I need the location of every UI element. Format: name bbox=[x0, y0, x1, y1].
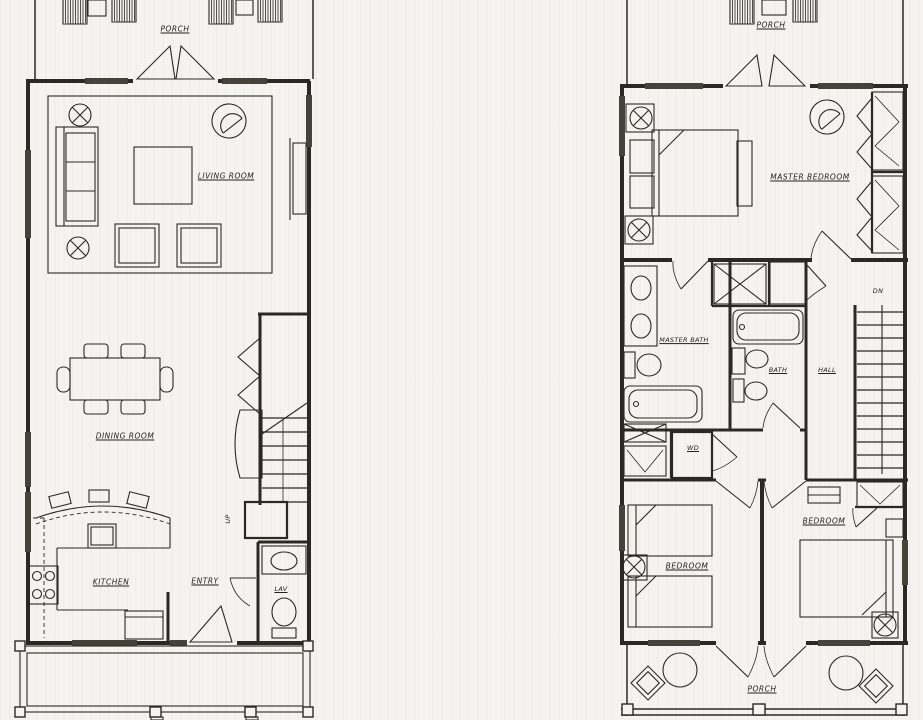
entry-label: ENTRY bbox=[191, 577, 218, 586]
toilet bbox=[624, 352, 661, 378]
buffet-cabinet bbox=[235, 410, 262, 478]
bath-label: BATH bbox=[769, 366, 788, 374]
door-swing bbox=[764, 481, 806, 508]
closet-bifold-doors bbox=[238, 338, 260, 414]
bathtub bbox=[624, 386, 702, 422]
washer-dryer-closet bbox=[672, 432, 712, 478]
second-floor-front-porch bbox=[627, 0, 903, 86]
dining-room-label: DINING ROOM bbox=[96, 432, 155, 441]
sofa bbox=[56, 127, 98, 226]
rocking-chair bbox=[258, 0, 282, 22]
queen-bed bbox=[800, 540, 893, 617]
ceiling-fan-icon bbox=[67, 237, 89, 259]
twin-bed bbox=[628, 505, 712, 556]
stove bbox=[28, 566, 58, 604]
second-floor bbox=[619, 0, 908, 716]
master-bath-label: MASTER BATH bbox=[659, 337, 709, 345]
ottoman-chair bbox=[177, 224, 221, 267]
rocking-chair bbox=[730, 0, 754, 24]
twin-bed bbox=[628, 576, 712, 627]
bar-counter bbox=[36, 506, 170, 518]
closet-hanging bbox=[624, 446, 666, 476]
bedroom-label: BEDROOM bbox=[803, 517, 846, 526]
porch-chair bbox=[859, 669, 893, 703]
door-swing bbox=[230, 578, 256, 606]
master-bed bbox=[652, 130, 738, 216]
ottoman-chair bbox=[115, 224, 159, 267]
dining-chair bbox=[84, 400, 108, 414]
dining-chair bbox=[121, 344, 145, 358]
ceiling-fan-icon bbox=[69, 104, 91, 126]
nightstand bbox=[886, 519, 903, 537]
bench bbox=[737, 141, 752, 206]
dining-chair bbox=[57, 367, 70, 392]
porch-label: PORCH bbox=[160, 25, 189, 34]
armchair bbox=[205, 97, 253, 145]
first-floor-front-porch bbox=[35, 0, 313, 79]
linen-closet bbox=[624, 424, 666, 442]
rocking-chair bbox=[209, 0, 233, 24]
dining-chair bbox=[121, 400, 145, 414]
porch-label: PORCH bbox=[756, 21, 785, 30]
closet-hanging bbox=[857, 92, 903, 253]
nightstand bbox=[630, 140, 654, 173]
bar-stool bbox=[49, 492, 71, 508]
shower bbox=[714, 264, 766, 304]
ceiling-fan-icon bbox=[630, 107, 652, 129]
master-bedroom-label: MASTER BEDROOM bbox=[770, 173, 849, 182]
french-doors bbox=[137, 46, 214, 79]
entry bbox=[190, 606, 232, 642]
nightstand bbox=[630, 176, 654, 208]
door-swing bbox=[853, 508, 877, 527]
hall-closet bbox=[770, 262, 806, 304]
dining-room bbox=[57, 344, 173, 414]
lav-label: LAV bbox=[274, 585, 287, 593]
front-door bbox=[190, 606, 232, 642]
door-swing bbox=[716, 481, 758, 508]
console-cabinet bbox=[293, 143, 306, 214]
armchair bbox=[803, 93, 851, 141]
door-swing bbox=[673, 261, 708, 289]
bathroom-sink bbox=[746, 350, 768, 368]
dn-label: DN bbox=[873, 287, 883, 295]
double-vanity bbox=[624, 266, 657, 346]
staircase-up bbox=[235, 314, 309, 538]
bedroom-label: BEDROOM bbox=[666, 562, 709, 571]
master-bedroom bbox=[625, 92, 903, 259]
door-swing bbox=[763, 403, 800, 428]
refrigerator bbox=[125, 611, 163, 639]
bar-stool bbox=[89, 490, 109, 502]
porch-table bbox=[663, 653, 697, 687]
rear-deck bbox=[15, 641, 313, 720]
first-floor bbox=[15, 0, 313, 720]
rocking-chair bbox=[793, 0, 817, 22]
kitchen bbox=[28, 490, 170, 643]
kitchen-label: KITCHEN bbox=[93, 578, 129, 587]
toilet bbox=[272, 598, 296, 638]
first-floor-walls bbox=[25, 78, 312, 646]
door-swing bbox=[806, 264, 826, 301]
porch-side-table bbox=[88, 0, 106, 16]
up-label: UP bbox=[224, 514, 232, 523]
dining-table bbox=[70, 358, 160, 400]
dresser bbox=[808, 487, 840, 503]
powder-room bbox=[230, 542, 309, 643]
master-bath bbox=[624, 261, 826, 422]
floorplan-drawing bbox=[0, 0, 923, 720]
hall-bath bbox=[732, 310, 803, 428]
toilet bbox=[733, 379, 767, 402]
rocking-chair bbox=[112, 0, 136, 22]
bathroom-sink bbox=[262, 546, 306, 574]
porch-label: PORCH bbox=[747, 685, 776, 694]
hall-label: HALL bbox=[818, 366, 836, 374]
bedroom-left bbox=[621, 481, 758, 627]
second-floor-rear-porch bbox=[621, 645, 907, 716]
french-doors bbox=[726, 55, 805, 86]
door-swing bbox=[712, 434, 737, 471]
understair-closet bbox=[245, 502, 287, 538]
porch-side-table bbox=[236, 0, 253, 15]
cooktop-appliance bbox=[88, 524, 116, 548]
rocking-chair bbox=[63, 0, 87, 24]
ceiling-fan-icon bbox=[628, 219, 650, 241]
dining-chair bbox=[84, 344, 108, 358]
bar-stool bbox=[127, 492, 149, 508]
door-swing bbox=[716, 646, 758, 677]
ceiling-fan-icon bbox=[623, 556, 645, 578]
door-swing bbox=[764, 646, 806, 677]
bedroom-right bbox=[764, 481, 903, 638]
area-rug bbox=[48, 96, 272, 273]
porch-table bbox=[829, 656, 863, 690]
door-swing bbox=[811, 231, 851, 259]
porch-side-table bbox=[762, 0, 786, 15]
floorplan-scan: PORCH LIVING ROOM DINING ROOM KITCHEN EN… bbox=[0, 0, 923, 720]
bathtub bbox=[733, 310, 803, 344]
closet-hanging bbox=[855, 482, 903, 507]
porch-chair bbox=[631, 666, 665, 700]
dining-chair bbox=[160, 367, 173, 392]
living-room-label: LIVING ROOM bbox=[198, 172, 255, 181]
wd-label: WD bbox=[687, 444, 699, 452]
coffee-table bbox=[134, 147, 192, 204]
living-room bbox=[48, 96, 306, 273]
